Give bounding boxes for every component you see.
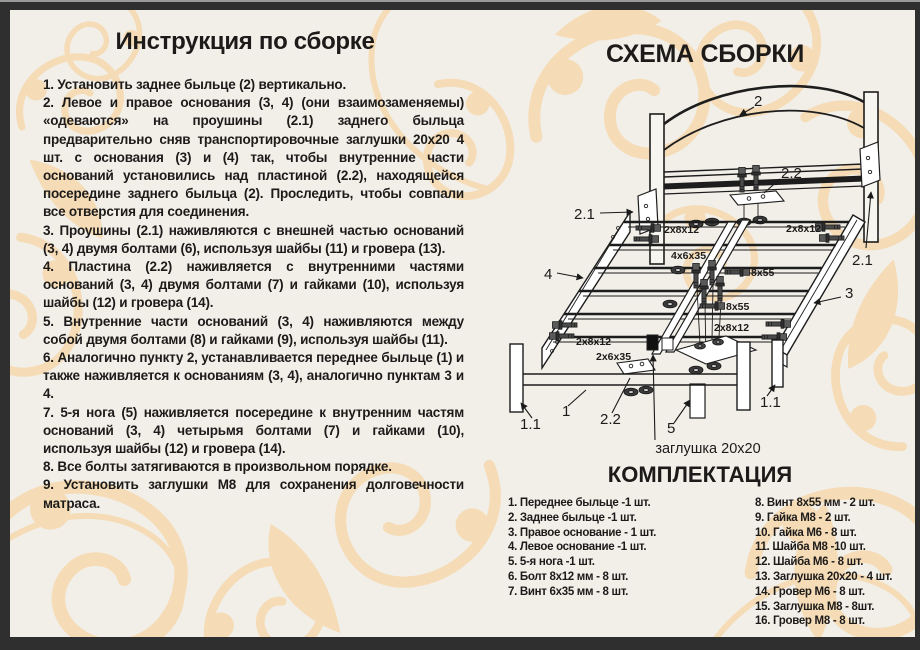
part-item: 2. Заднее быльце -1 шт. <box>508 511 748 526</box>
parts-list-title: КОМПЛЕКТАЦИЯ <box>480 462 915 488</box>
diagram-caption-plug: заглушка 20х20 <box>655 441 760 457</box>
part-item: 10. Гайка М6 - 8 шт. <box>755 526 915 541</box>
part-item: 7. Винт 6х35 мм - 8 шт. <box>508 585 748 600</box>
step-1: 1. Установить заднее быльце (2) вертикал… <box>43 76 464 94</box>
part-item: 15. Заглушка М8 - 8шт. <box>755 600 915 615</box>
diagram-spec-8x55-lower: 8х55 <box>726 301 750 313</box>
diagram-label-2: 2 <box>754 93 762 110</box>
diagram-spec-2x6x35: 2х6х35 <box>596 351 631 363</box>
step-5: 5. Внутренние части оснований (3, 4) наж… <box>43 313 464 349</box>
part-item: 14. Гровер М6 - 8 шт. <box>755 585 915 600</box>
diagram-spec-2x8x12-mid-right: 2х8х12 <box>714 322 749 334</box>
diagram-spec-2x8x12-top-left: 2х8х12 <box>664 224 699 236</box>
front-plate-assembly <box>617 359 655 396</box>
assembly-diagram: 2 2.2 2.1 2.1 4 3 1 1.1 1.1 2.2 5 2х8х12… <box>500 82 910 462</box>
part-item: 3. Правое основание - 1 шт. <box>508 526 748 541</box>
diagram-spec-8x55-upper: 8х55 <box>751 267 775 279</box>
page-frame: Инструкция по сборке 1. Установить задне… <box>0 0 920 650</box>
diagram-label-1-1-left: 1.1 <box>520 416 541 433</box>
diagram-label-1-1-right: 1.1 <box>760 394 781 411</box>
part-item: 6. Болт 8х12 мм - 8 шт. <box>508 570 748 585</box>
instructions-steps: 1. Установить заднее быльце (2) вертикал… <box>43 76 464 513</box>
diagram-spec-4x6x35: 4х6х35 <box>671 250 706 262</box>
step-7: 7. 5-я нога (5) наживляется посередине к… <box>43 404 464 459</box>
part-item: 16. Гровер М8 - 8 шт. <box>755 614 915 629</box>
part-item: 9. Гайка М8 - 2 шт. <box>755 511 915 526</box>
instructions-title: Инструкция по сборке <box>25 28 465 56</box>
parts-list-left-column: 1. Переднее быльце -1 шт. 2. Заднее быль… <box>508 496 748 600</box>
diagram-spec-2x8x12-bottom-left: 2х8х12 <box>576 336 611 348</box>
part-item: 8. Винт 8х55 мм - 2 шт. <box>755 496 915 511</box>
diagram-label-2-1-left: 2.1 <box>574 206 595 223</box>
diagram-spec-2x8x12-top-right: 2х8х12 <box>786 223 821 235</box>
step-6: 6. Аналогично пункту 2, устанавливается … <box>43 349 464 404</box>
part-item: 12. Шайба М6 - 8 шт. <box>755 555 915 570</box>
diagram-label-2-2-top: 2.2 <box>781 165 802 182</box>
diagram-title: СХЕМА СБОРКИ <box>490 40 915 69</box>
part-item: 1. Переднее быльце -1 шт. <box>508 496 748 511</box>
part-item: 11. Шайба М8 -10 шт. <box>755 540 915 555</box>
part-item: 4. Левое основание -1 шт. <box>508 540 748 555</box>
diagram-label-2-1-right: 2.1 <box>852 252 873 269</box>
step-9: 9. Установить заглушки М8 для сохранения… <box>43 476 464 512</box>
diagram-label-1: 1 <box>562 403 570 420</box>
step-3: 3. Проушины (2.1) наживляются с внешней … <box>43 222 464 258</box>
page: Инструкция по сборке 1. Установить задне… <box>10 10 915 637</box>
parts-list-right-column: 8. Винт 8х55 мм - 2 шт. 9. Гайка М8 - 2 … <box>755 496 915 629</box>
diagram-label-3: 3 <box>845 285 853 302</box>
diagram-label-4: 4 <box>544 266 552 283</box>
part-item: 5. 5-я нога -1 шт. <box>508 555 748 570</box>
diagram-label-5: 5 <box>667 420 675 437</box>
lug-right-drawing <box>860 142 880 187</box>
step-2: 2. Левое и правое основания (3, 4) (они … <box>43 94 464 221</box>
step-4: 4. Пластина (2.2) наживляется с внутренн… <box>43 258 464 313</box>
part-item: 13. Заглушка 20х20 - 4 шт. <box>755 570 915 585</box>
diagram-label-2-2-bottom: 2.2 <box>600 411 621 428</box>
step-8: 8. Все болты затягиваются в произвольном… <box>43 458 464 476</box>
